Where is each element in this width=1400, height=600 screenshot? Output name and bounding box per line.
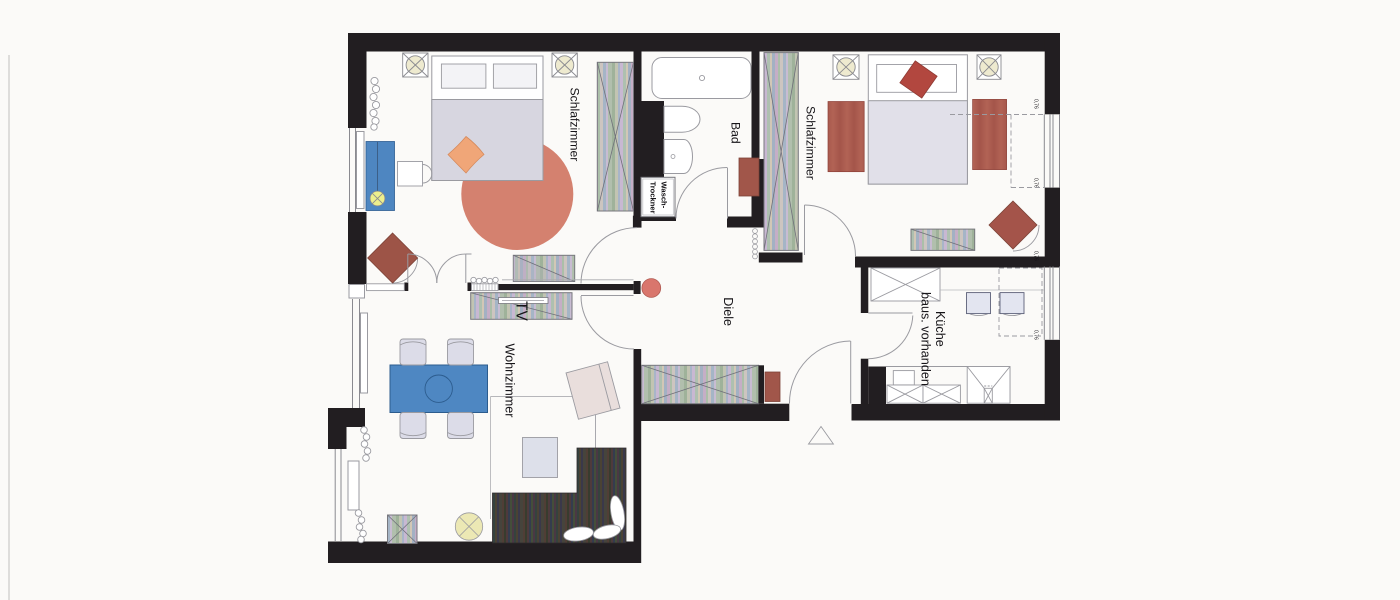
svg-text:0,76: 0,76 xyxy=(1033,99,1039,109)
svg-text:Schlafzimmer: Schlafzimmer xyxy=(804,106,818,180)
svg-text:Wohnzimmer: Wohnzimmer xyxy=(503,344,517,418)
svg-text:Trockner: Trockner xyxy=(649,182,658,214)
svg-text:Wasch-: Wasch- xyxy=(660,182,669,209)
svg-text:baus. vorhanden: baus. vorhanden xyxy=(919,292,933,386)
svg-text:0,76: 0,76 xyxy=(1033,178,1039,188)
svg-text:Diele: Diele xyxy=(721,297,735,326)
svg-text:0,76: 0,76 xyxy=(1033,330,1039,340)
svg-text:Bad: Bad xyxy=(729,122,743,144)
svg-text:0,76: 0,76 xyxy=(1033,251,1039,261)
svg-text:TV: TV xyxy=(513,301,530,321)
svg-text:Schlafzimmer: Schlafzimmer xyxy=(568,88,582,162)
svg-text:Küche: Küche xyxy=(933,311,947,347)
